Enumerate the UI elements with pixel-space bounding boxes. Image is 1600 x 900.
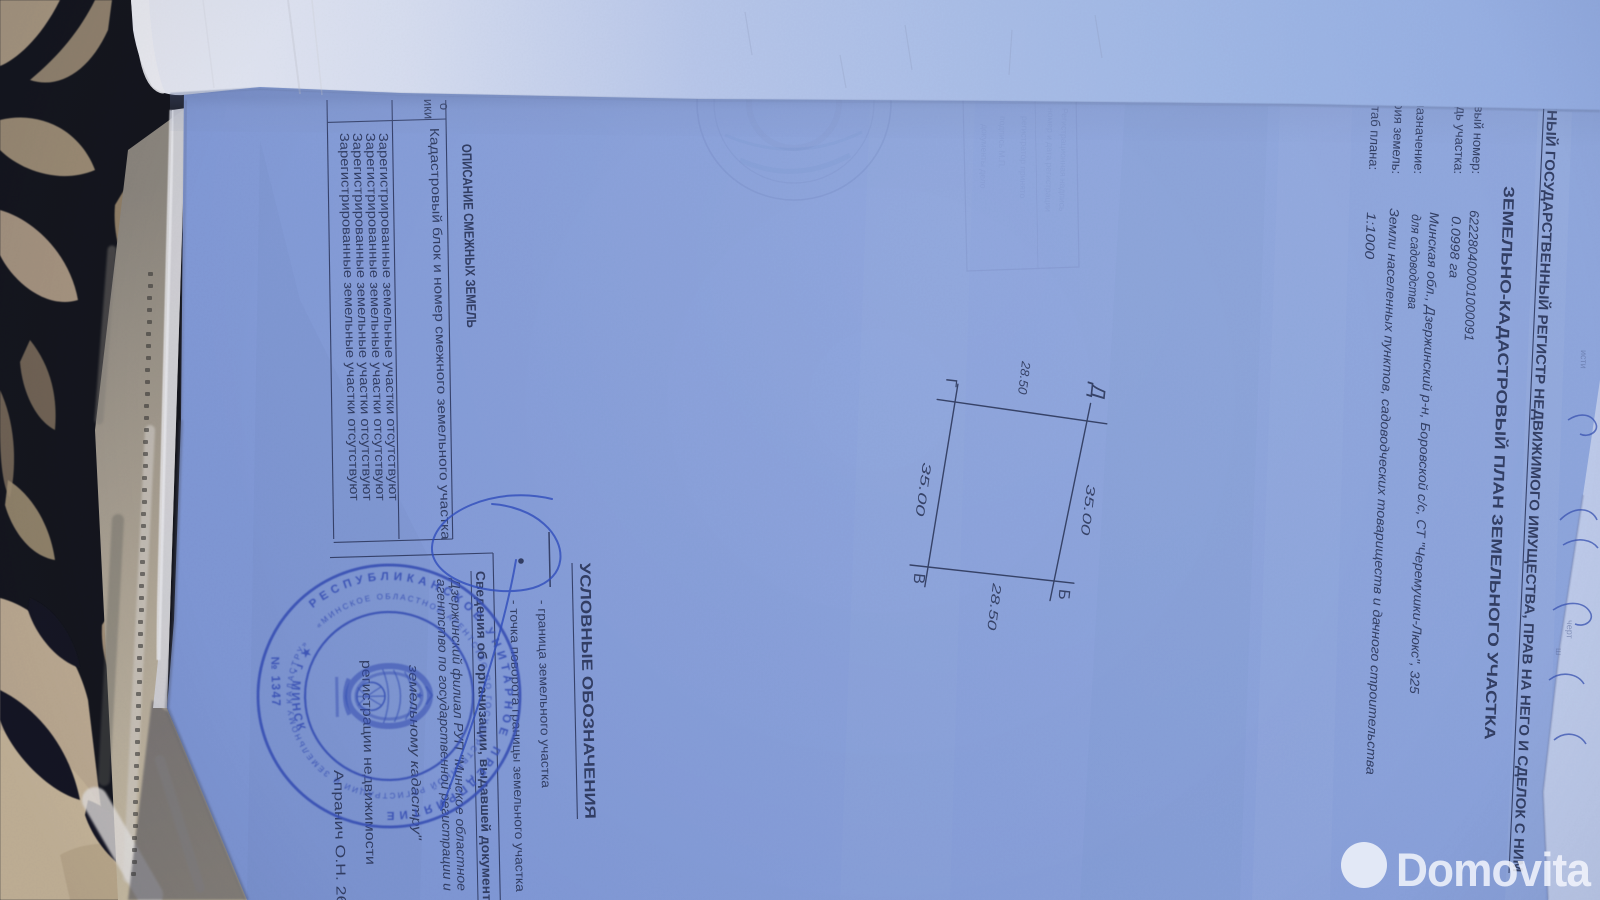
svg-text:Domovita: Domovita [1396, 843, 1592, 896]
